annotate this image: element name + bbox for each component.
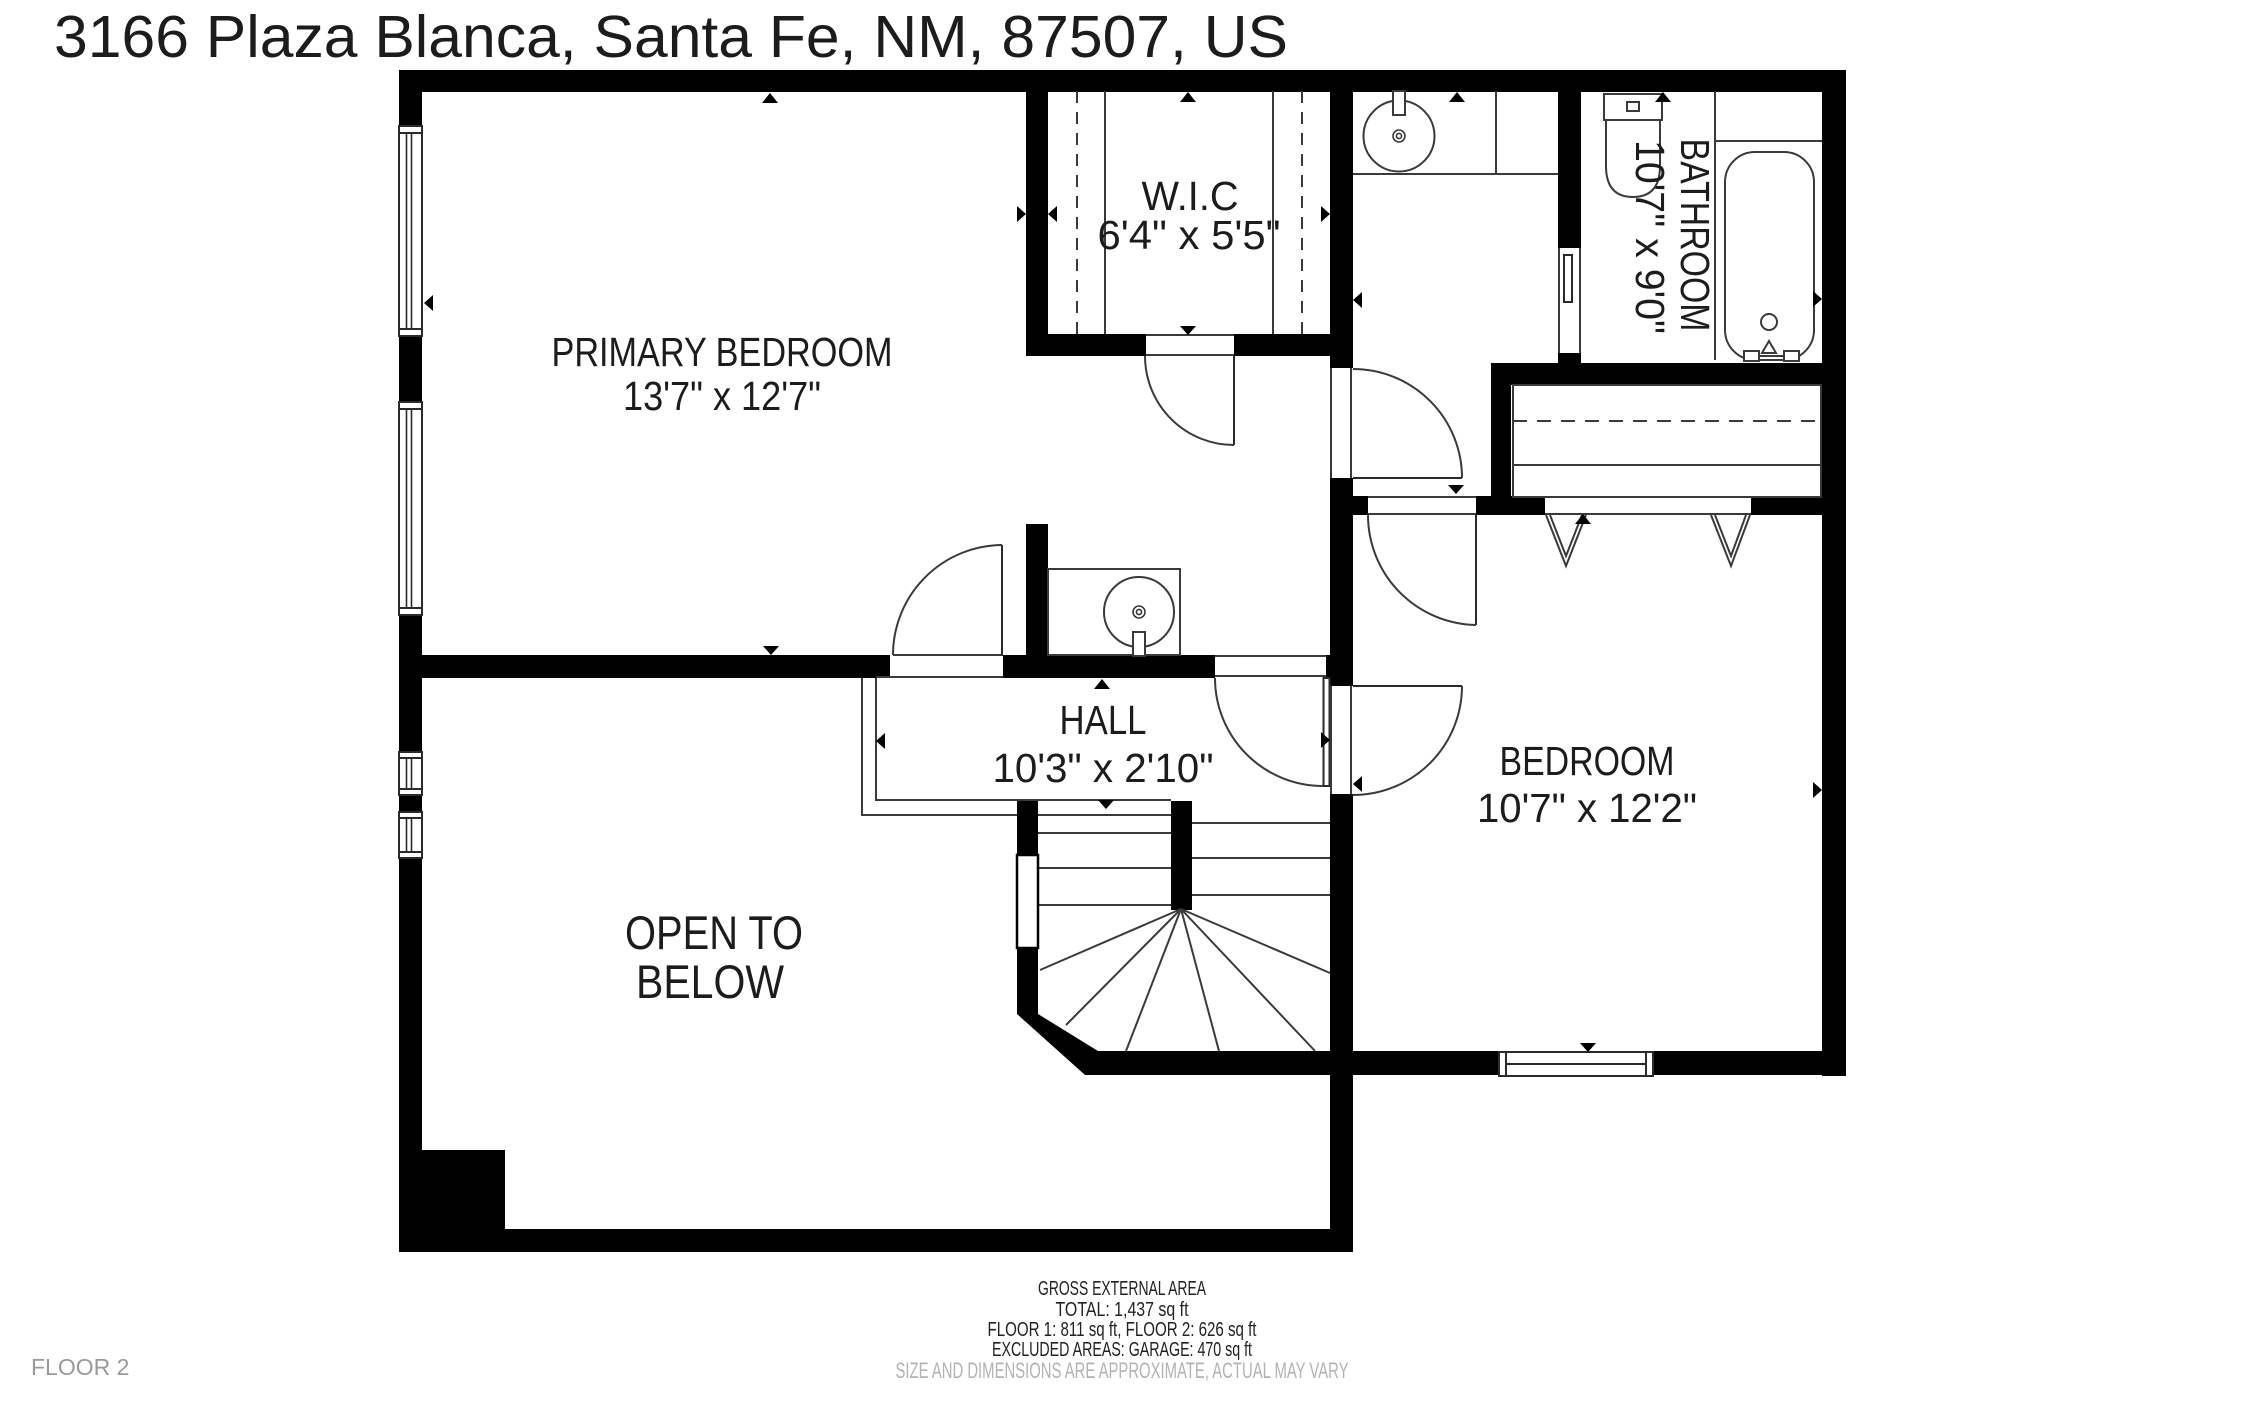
svg-text:BELOW: BELOW [636, 955, 785, 1008]
svg-text:FLOOR 1: 811 sq ft, FLOOR 2: 6: FLOOR 1: 811 sq ft, FLOOR 2: 626 sq ft [988, 1319, 1257, 1341]
svg-text:BEDROOM: BEDROOM [1500, 738, 1675, 784]
svg-text:10'7" x 9'0": 10'7" x 9'0" [1627, 140, 1673, 334]
svg-text:GROSS EXTERNAL AREA: GROSS EXTERNAL AREA [1038, 1278, 1206, 1300]
svg-text:TOTAL: 1,437 sq ft: TOTAL: 1,437 sq ft [1056, 1299, 1189, 1321]
svg-text:HALL: HALL [1060, 697, 1147, 743]
svg-text:10'3" x 2'10": 10'3" x 2'10" [993, 745, 1214, 791]
svg-text:10'7" x 12'2": 10'7" x 12'2" [1477, 785, 1697, 831]
svg-text:3166 Plaza Blanca, Santa Fe, N: 3166 Plaza Blanca, Santa Fe, NM, 87507, … [54, 4, 1288, 70]
svg-text:PRIMARY BEDROOM: PRIMARY BEDROOM [552, 329, 893, 375]
svg-text:SIZE AND DIMENSIONS ARE APPROX: SIZE AND DIMENSIONS ARE APPROXIMATE, ACT… [896, 1358, 1349, 1383]
svg-text:6'4" x 5'5": 6'4" x 5'5" [1098, 212, 1281, 258]
svg-text:OPEN TO: OPEN TO [625, 906, 803, 959]
svg-text:13'7" x 12'7": 13'7" x 12'7" [623, 373, 821, 419]
svg-text:FLOOR 2: FLOOR 2 [31, 1354, 129, 1380]
svg-text:BATHROOM: BATHROOM [1672, 139, 1718, 332]
